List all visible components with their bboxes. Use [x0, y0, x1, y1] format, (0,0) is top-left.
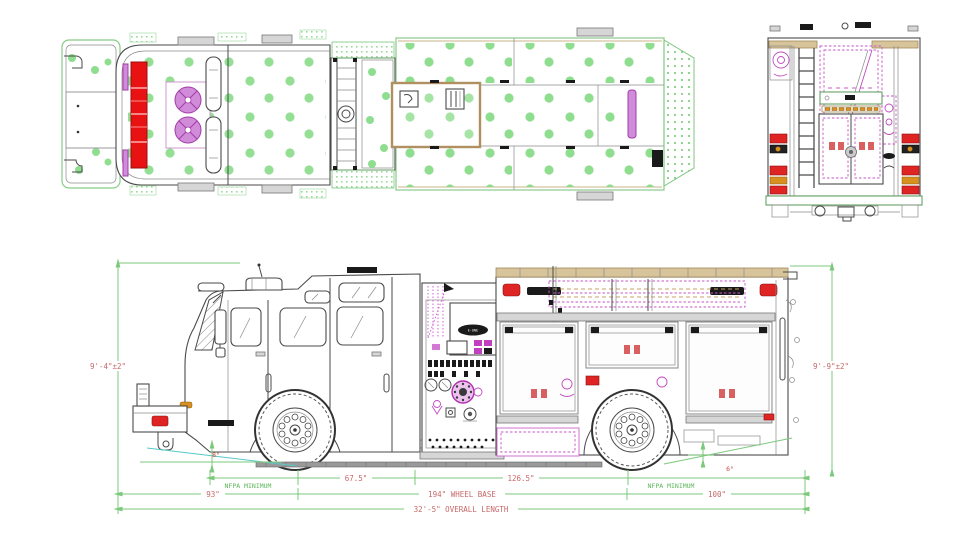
blueprint-canvas: E-ONE: [0, 0, 980, 552]
roof-beacon: [198, 283, 224, 291]
bumper-warning-light: [152, 416, 168, 426]
rear-handrail-right: [872, 41, 918, 48]
body-plan: [392, 28, 664, 200]
crew-window: [280, 308, 326, 346]
roof-marker-lights: [347, 267, 377, 273]
hose-reel-plan: [652, 150, 663, 167]
door-handle-1: [256, 352, 265, 356]
dim-100-label: 100": [708, 490, 726, 499]
e-one-logo-text: E-ONE: [468, 328, 479, 332]
dim-93-label: 93": [206, 490, 220, 499]
front-bumper-plan: [62, 40, 120, 188]
fire-truck-drawing: E-ONE: [0, 0, 980, 552]
marker-light-front-left: [123, 64, 128, 90]
license-lamp: [883, 153, 895, 159]
rear-top-lights: [770, 22, 918, 31]
front-bumper-side: [133, 384, 187, 450]
cab-nameplate: [208, 420, 234, 426]
pump-panel: E-ONE: [420, 283, 504, 459]
crew-door-window: [337, 307, 383, 345]
nfpa-rear-label: NFPA MINIMUM: [648, 482, 695, 490]
rear-view: [766, 22, 922, 221]
hatch-vent-icon: [446, 89, 464, 109]
departure-angle-label: 6°: [726, 465, 734, 473]
roof-lightbar: [131, 62, 147, 168]
marker-light-front-right: [123, 150, 128, 176]
dim-row-overall: 32'-5" OVERALL LENGTH: [118, 505, 805, 514]
compartment-door-2: [586, 322, 678, 368]
bumper-post: [137, 384, 149, 406]
compartment-door-3: [686, 322, 772, 414]
approach-angle-label: 8°: [212, 451, 220, 459]
tailboard: [766, 196, 922, 205]
dim-overall-length-label: 32'-5" OVERALL LENGTH: [414, 505, 509, 514]
side-view: E-ONE: [133, 264, 800, 471]
upper-window-2: [339, 283, 384, 302]
winch-tray: [66, 92, 120, 148]
fuel-cap: [586, 376, 599, 385]
rear-compartment: [819, 114, 883, 184]
dim-height-front-label: 9'-4"±2": [90, 362, 126, 371]
hatch-latch-icon: [400, 91, 418, 107]
roof-vent-fans: [166, 82, 210, 148]
dim-126-label: 126.5": [507, 474, 534, 483]
air-horns: [246, 278, 282, 290]
ground-line: [256, 462, 602, 467]
door-handle-2: [372, 352, 381, 356]
cab-plan: [116, 30, 330, 198]
dim-wheelbase-label: 194" WHEEL BASE: [428, 490, 496, 499]
door-header-rail: [497, 313, 775, 321]
body-roof-hatch: [392, 83, 480, 147]
rear-amber-strip: [822, 106, 880, 112]
rear-handrail-left: [769, 41, 817, 48]
compartment-door-1: [500, 322, 578, 414]
pump-module-plan: [331, 42, 395, 188]
plan-view: [62, 28, 694, 200]
dim-row-axles: 67.5" 126.5" NFPA MINIMUM NFPA MINIMUM: [210, 470, 805, 490]
skirt-compartment: [497, 428, 579, 456]
dim-height-rear: 9'-9"±2": [790, 266, 856, 472]
dim-67-label: 67.5": [345, 474, 368, 483]
rear-chassis: [772, 205, 918, 221]
roof-hatch-left: [206, 57, 221, 111]
dim-height-rear-label: 9'-9"±2": [813, 362, 849, 371]
nfpa-front-label: NFPA MINIMUM: [225, 482, 272, 490]
upper-window-1: [305, 291, 330, 303]
switch-row-1: [428, 360, 492, 367]
pump-running-board: [420, 452, 504, 459]
front-door-window: [231, 308, 261, 346]
roof-hatch-right: [206, 117, 221, 173]
body-side: [496, 266, 800, 470]
rear-body-light-plan: [628, 90, 636, 138]
